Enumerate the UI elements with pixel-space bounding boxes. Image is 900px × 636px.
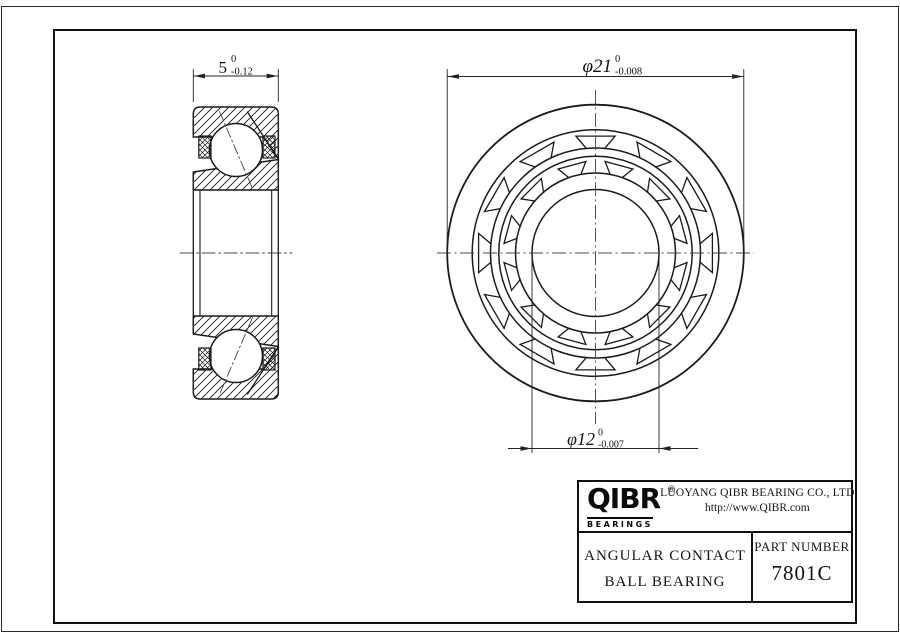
tolerance-upper: 0: [231, 54, 236, 65]
product-description: ANGULAR CONTACT BALL BEARING: [579, 533, 753, 601]
part-number-cell: PART NUMBER 7801C: [753, 533, 851, 601]
arrow-right: [267, 74, 278, 79]
arrow-left: [448, 74, 459, 79]
part-number-value: 7801C: [753, 561, 851, 586]
company-name: LUOYANG QIBR BEARING CO., LTD: [660, 487, 855, 499]
cage-bottom-right: [263, 348, 275, 370]
drawing-sheet: 5 0 -0.12 φ21 0 -0.008: [0, 0, 900, 636]
company-logo: QIBR® BEARINGS: [579, 482, 660, 531]
tolerance-lower: -0.008: [615, 67, 642, 78]
product-line-2: BALL BEARING: [579, 569, 751, 595]
dim-value: φ12: [567, 429, 595, 449]
cage-top-right: [263, 136, 275, 158]
tolerance-lower: -0.007: [598, 440, 624, 451]
part-number-label: PART NUMBER: [753, 539, 851, 555]
cage-bottom-left: [199, 348, 211, 370]
tolerance-upper: 0: [598, 428, 603, 439]
bore-diameter-dimension: φ12 0 -0.007: [508, 258, 698, 453]
title-block-bottom-row: ANGULAR CONTACT BALL BEARING PART NUMBER…: [579, 533, 851, 601]
logo-wordmark: QIBR: [587, 482, 660, 515]
arrow-left: [194, 74, 205, 79]
arrow-right: [659, 446, 670, 451]
front-view: [437, 90, 754, 424]
registered-trademark-icon: ®: [667, 485, 676, 495]
arrow-left: [521, 446, 532, 451]
product-line-1: ANGULAR CONTACT: [579, 543, 751, 569]
dim-value: 5: [219, 58, 228, 77]
cage-top-left: [199, 136, 211, 158]
arrow-right: [732, 74, 743, 79]
logo-subtext: BEARINGS: [587, 517, 653, 529]
section-view: [180, 107, 292, 399]
company-website: http://www.QIBR.com: [660, 502, 855, 514]
dim-value: φ21: [582, 56, 612, 77]
tolerance-upper: 0: [615, 54, 620, 65]
title-block-header-row: QIBR® BEARINGS LUOYANG QIBR BEARING CO.,…: [579, 482, 851, 533]
tolerance-lower: -0.12: [231, 67, 253, 78]
company-info: LUOYANG QIBR BEARING CO., LTD http://www…: [660, 482, 855, 531]
title-block: QIBR® BEARINGS LUOYANG QIBR BEARING CO.,…: [577, 480, 853, 603]
width-dimension: 5 0 -0.12: [193, 54, 278, 102]
